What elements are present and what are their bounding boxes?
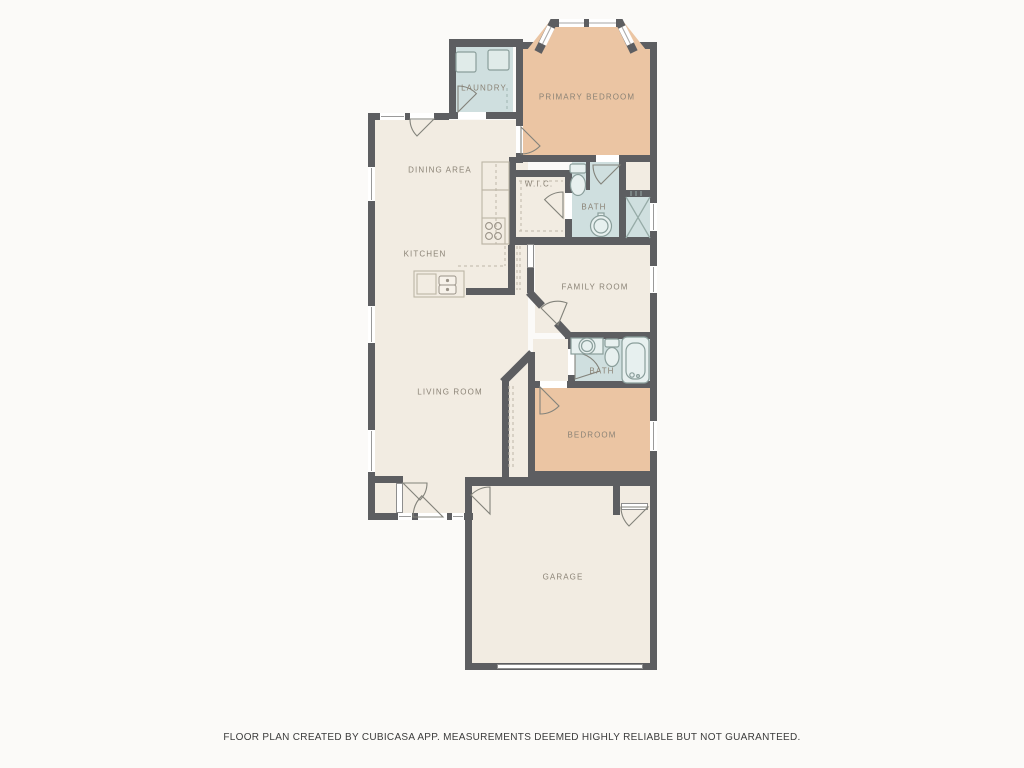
room-label-wic: W.I.C. bbox=[525, 180, 553, 189]
door-swings bbox=[403, 86, 648, 526]
door-wic bbox=[545, 192, 563, 218]
room-label-garage: GARAGE bbox=[543, 573, 584, 582]
kitchen-sink bbox=[439, 276, 456, 294]
door-dining bbox=[410, 119, 434, 136]
floor-plan: LAUNDRY PRIMARY BEDROOM DINING AREA W.I.… bbox=[0, 0, 1024, 768]
door-primary-bath bbox=[593, 165, 620, 184]
stove-burners bbox=[486, 223, 502, 240]
room-label-bedroom: BEDROOM bbox=[567, 431, 616, 440]
door-garage-side bbox=[471, 487, 490, 514]
door-entry bbox=[413, 496, 443, 517]
room-label-dining-area: DINING AREA bbox=[408, 166, 472, 175]
door-bedroom bbox=[540, 387, 559, 414]
room-label-primary-bedroom: PRIMARY BEDROOM bbox=[539, 93, 635, 102]
door-primary-bedroom bbox=[521, 127, 540, 154]
room-label-bath2: BATH bbox=[589, 367, 614, 376]
diagonal-walls bbox=[503, 292, 569, 382]
room-label-living-room: LIVING ROOM bbox=[417, 388, 482, 397]
bay-window bbox=[523, 21, 650, 55]
door-garage-alcove bbox=[621, 507, 648, 526]
kitchen-fixtures bbox=[414, 162, 509, 297]
dashed-lines bbox=[458, 88, 563, 468]
room-label-primary-bath: BATH bbox=[581, 203, 606, 212]
room-label-kitchen: KITCHEN bbox=[404, 250, 447, 259]
washer-dryer-icons bbox=[456, 50, 509, 72]
room-label-laundry: LAUNDRY bbox=[461, 84, 507, 93]
shower bbox=[626, 191, 650, 238]
plan-overlay bbox=[0, 0, 1024, 768]
door-family-room bbox=[541, 301, 567, 325]
room-label-family-room: FAMILY ROOM bbox=[562, 283, 629, 292]
primary-bath-fixtures bbox=[570, 164, 612, 237]
